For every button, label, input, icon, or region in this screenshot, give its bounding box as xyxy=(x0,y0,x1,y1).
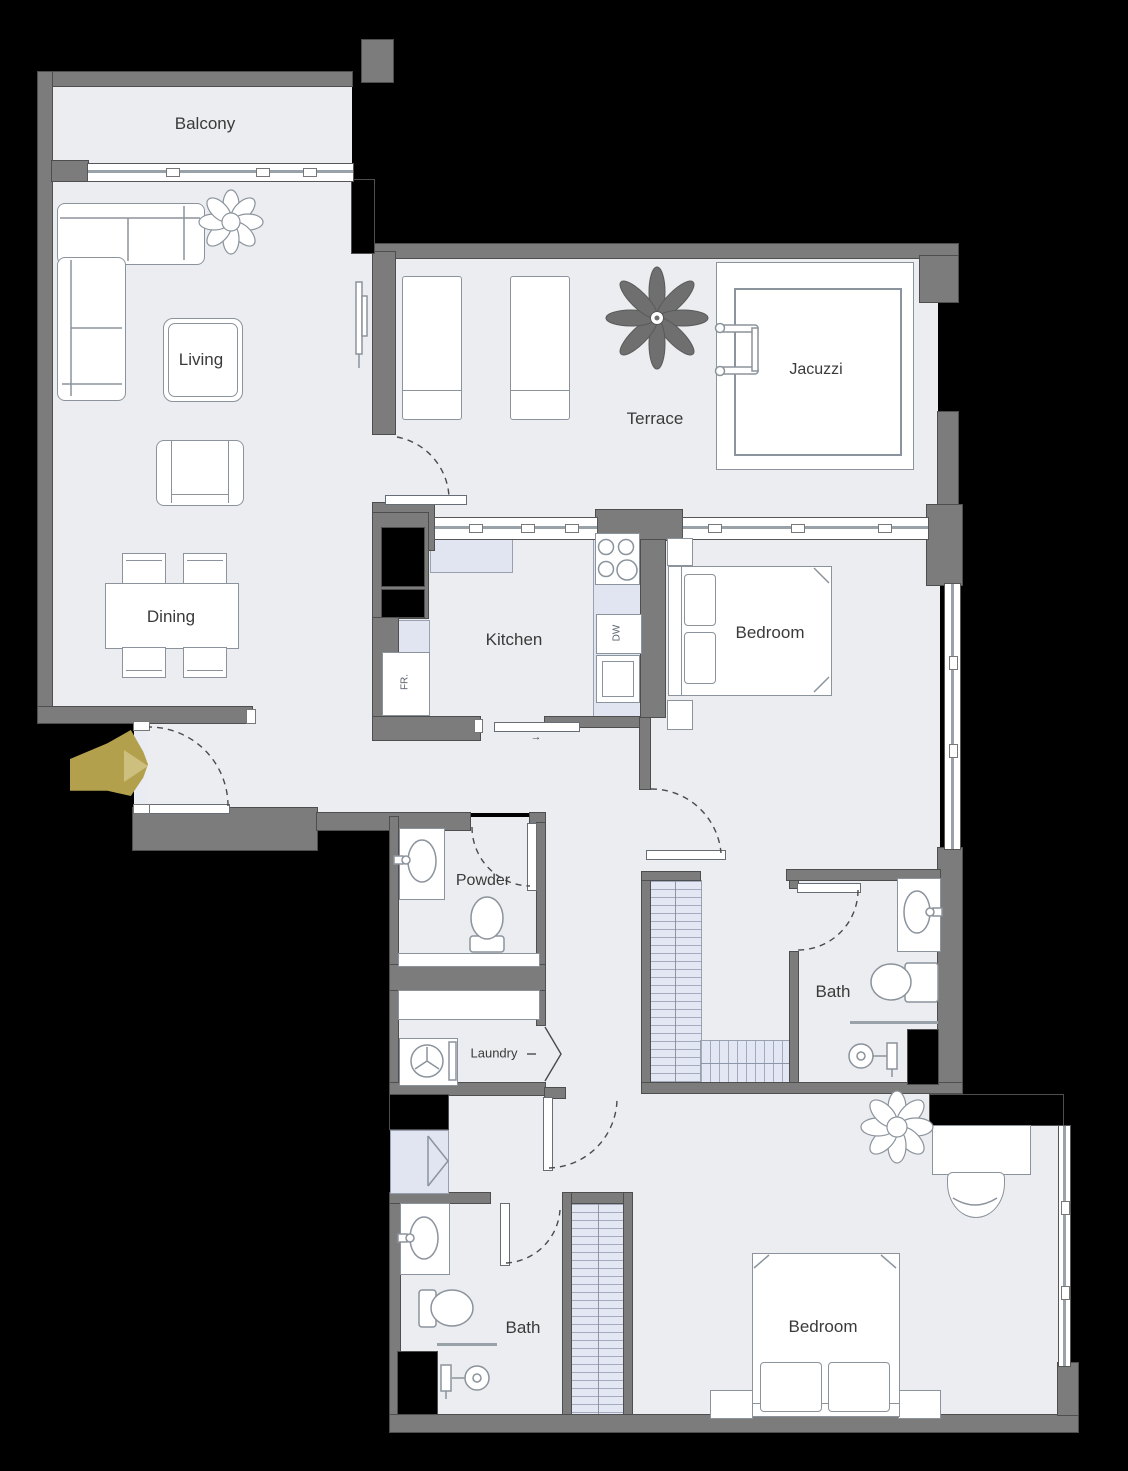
wall xyxy=(938,412,958,507)
desk xyxy=(932,1125,1031,1175)
pillow xyxy=(684,574,716,626)
nightstand xyxy=(667,700,693,730)
shower-partition xyxy=(850,1021,938,1024)
shaft xyxy=(908,1030,938,1084)
shaft xyxy=(390,1095,448,1129)
bath1-sink xyxy=(897,878,941,952)
jacuzzi-label: Jacuzzi xyxy=(789,361,842,379)
dining-chair xyxy=(122,647,166,678)
wall xyxy=(642,872,650,1093)
wall-column xyxy=(362,40,393,82)
door-jamb xyxy=(474,719,483,733)
sun-lounger xyxy=(402,276,462,420)
wall xyxy=(642,872,700,880)
window-bedroom1 xyxy=(682,517,929,540)
oven-stack xyxy=(382,590,424,617)
wall xyxy=(373,717,480,740)
shower-partition xyxy=(437,1343,497,1346)
oven-stack xyxy=(382,528,424,586)
terrace-label: Terrace xyxy=(627,409,684,429)
bath1-door-leaf xyxy=(797,883,861,893)
bedroom2-label: Bedroom xyxy=(789,1317,858,1337)
void-notch xyxy=(352,180,374,253)
wall xyxy=(52,161,88,181)
window-bedroom2 xyxy=(1058,1125,1071,1367)
terrace-door-leaf xyxy=(385,495,467,505)
bath2-door-leaf xyxy=(500,1203,510,1266)
wall xyxy=(563,1193,571,1418)
bath1-label: Bath xyxy=(816,982,851,1002)
bath2-label: Bath xyxy=(506,1318,541,1338)
sun-lounger xyxy=(510,276,570,420)
floor-plan: Balcony Living Dining Terrace Jacuzzi Ki… xyxy=(0,0,1128,1471)
balcony-label: Balcony xyxy=(175,114,235,134)
closet-strip xyxy=(571,1203,626,1417)
wall xyxy=(641,540,665,717)
armchair xyxy=(156,440,244,506)
wall xyxy=(38,72,52,723)
shaft xyxy=(930,1095,1063,1125)
powder-sink xyxy=(399,828,445,900)
powder-label: Powder xyxy=(456,872,510,890)
nightstand xyxy=(710,1390,753,1419)
door-jamb xyxy=(246,709,256,724)
sliding-door-arrow: → xyxy=(531,731,542,743)
entry-door-leaf xyxy=(147,804,230,814)
washing-machine xyxy=(399,1038,458,1086)
door-jamb xyxy=(133,804,150,814)
floor-hallway xyxy=(545,813,650,1098)
window-bedroom1-side xyxy=(944,583,961,850)
shaft xyxy=(398,1352,437,1414)
door-jamb xyxy=(133,721,150,731)
wall xyxy=(133,808,317,850)
wall xyxy=(938,848,962,1093)
laundry-counter xyxy=(398,990,540,1020)
living-label: Living xyxy=(179,350,223,370)
cooktop xyxy=(595,533,640,585)
wall xyxy=(390,965,545,990)
nightstand xyxy=(667,538,693,566)
bedroom2-door-leaf xyxy=(543,1097,553,1171)
wall xyxy=(624,1193,632,1418)
bedroom1-label: Bedroom xyxy=(736,623,805,643)
dining-label: Dining xyxy=(147,607,195,627)
nightstand xyxy=(898,1390,941,1419)
fridge-label: FR. xyxy=(400,674,411,690)
wall xyxy=(373,252,395,434)
laundry-label: Laundry xyxy=(471,1046,518,1061)
window-kitchen xyxy=(434,517,598,540)
pillow xyxy=(760,1362,822,1412)
sofa-top xyxy=(57,203,205,265)
dining-chair xyxy=(122,553,166,584)
kitchen-sink xyxy=(596,655,640,703)
window-balcony xyxy=(87,163,354,182)
wall xyxy=(642,1083,962,1093)
powder-counter xyxy=(398,953,540,967)
wall xyxy=(563,1193,632,1203)
wall xyxy=(374,244,958,258)
dining-chair xyxy=(183,647,227,678)
pillow xyxy=(828,1362,890,1412)
wall xyxy=(640,717,650,789)
kitchen-label: Kitchen xyxy=(486,630,543,650)
bath2-sink xyxy=(400,1203,450,1275)
wall xyxy=(1058,1363,1078,1415)
wall xyxy=(920,256,958,302)
dishwasher-label: DW xyxy=(612,625,623,642)
dining-chair xyxy=(183,553,227,584)
wardrobe-vertical xyxy=(650,880,702,1090)
sofa-left xyxy=(57,257,126,401)
wall xyxy=(390,817,398,1093)
wall xyxy=(38,72,352,86)
utility-cabinet xyxy=(390,1130,449,1194)
powder-door-leaf xyxy=(527,823,537,891)
wall xyxy=(790,952,798,1093)
wall xyxy=(927,505,962,585)
pillow xyxy=(684,632,716,684)
bedroom1-door-leaf xyxy=(646,850,726,860)
wall xyxy=(390,1193,490,1203)
